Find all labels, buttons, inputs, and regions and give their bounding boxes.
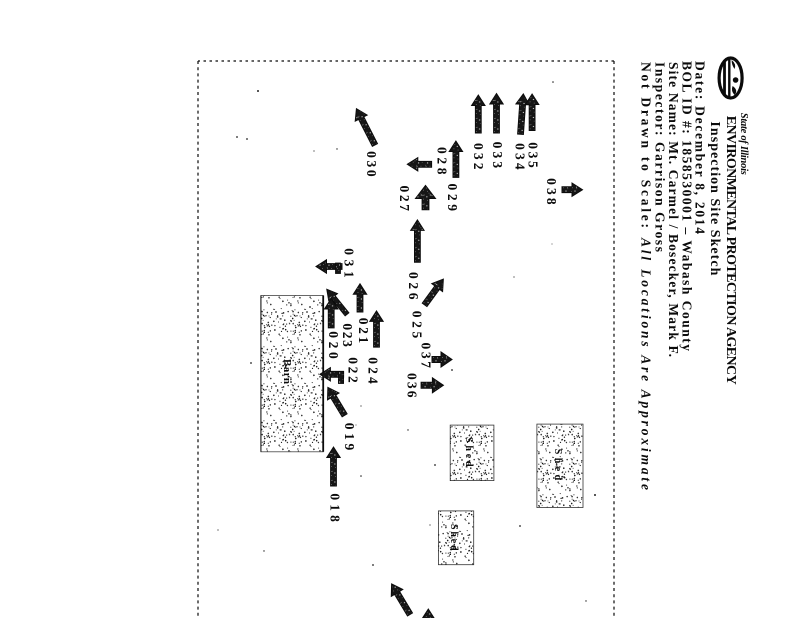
svg-text:Barn: Barn [281, 359, 293, 385]
svg-text:018: 018 [328, 493, 343, 524]
svg-text:020: 020 [326, 331, 341, 361]
svg-text:BOL ID #: 1858530001 – Wabash: BOL ID #: 1858530001 – Wabash County [680, 61, 695, 351]
svg-text:State of Illinois: State of Illinois [738, 113, 749, 175]
svg-text:All Locations Are Approximate: All Locations Are Approximate [639, 237, 654, 490]
svg-text:019: 019 [342, 423, 357, 453]
svg-text:036: 036 [405, 373, 420, 400]
svg-text:029: 029 [445, 184, 460, 214]
svg-text:Date: December 8, 2014: Date: December 8, 2014 [693, 61, 708, 234]
svg-text:026: 026 [406, 272, 421, 302]
svg-text:030: 030 [364, 151, 379, 179]
svg-text:Not Drawn to Scale:: Not Drawn to Scale: [639, 62, 654, 228]
svg-text:Inspection Site Sketch: Inspection Site Sketch [707, 121, 722, 275]
svg-text:035: 035 [526, 142, 541, 170]
svg-text:032: 032 [471, 143, 486, 172]
svg-text:038: 038 [544, 178, 559, 207]
svg-text:025: 025 [410, 311, 425, 341]
svg-text:022: 022 [346, 357, 361, 385]
svg-text:028: 028 [435, 147, 450, 177]
svg-text:023: 023 [340, 323, 355, 349]
svg-text:Site Name: Mt. Carmel / Bosec: Site Name: Mt. Carmel / Bosecker, Mark F… [666, 62, 681, 357]
svg-text:027: 027 [397, 186, 412, 214]
svg-text:021: 021 [356, 318, 371, 346]
svg-text:033: 033 [490, 142, 505, 171]
svg-text:037: 037 [419, 343, 434, 371]
svg-text:ENVIRONMENTAL PROTECTION AGENC: ENVIRONMENTAL PROTECTION AGENCY [723, 116, 738, 385]
svg-text:024: 024 [366, 357, 381, 386]
svg-text:Inspector: Garrison Gross: Inspector: Garrison Gross [653, 62, 668, 252]
svg-text:031: 031 [342, 248, 357, 280]
